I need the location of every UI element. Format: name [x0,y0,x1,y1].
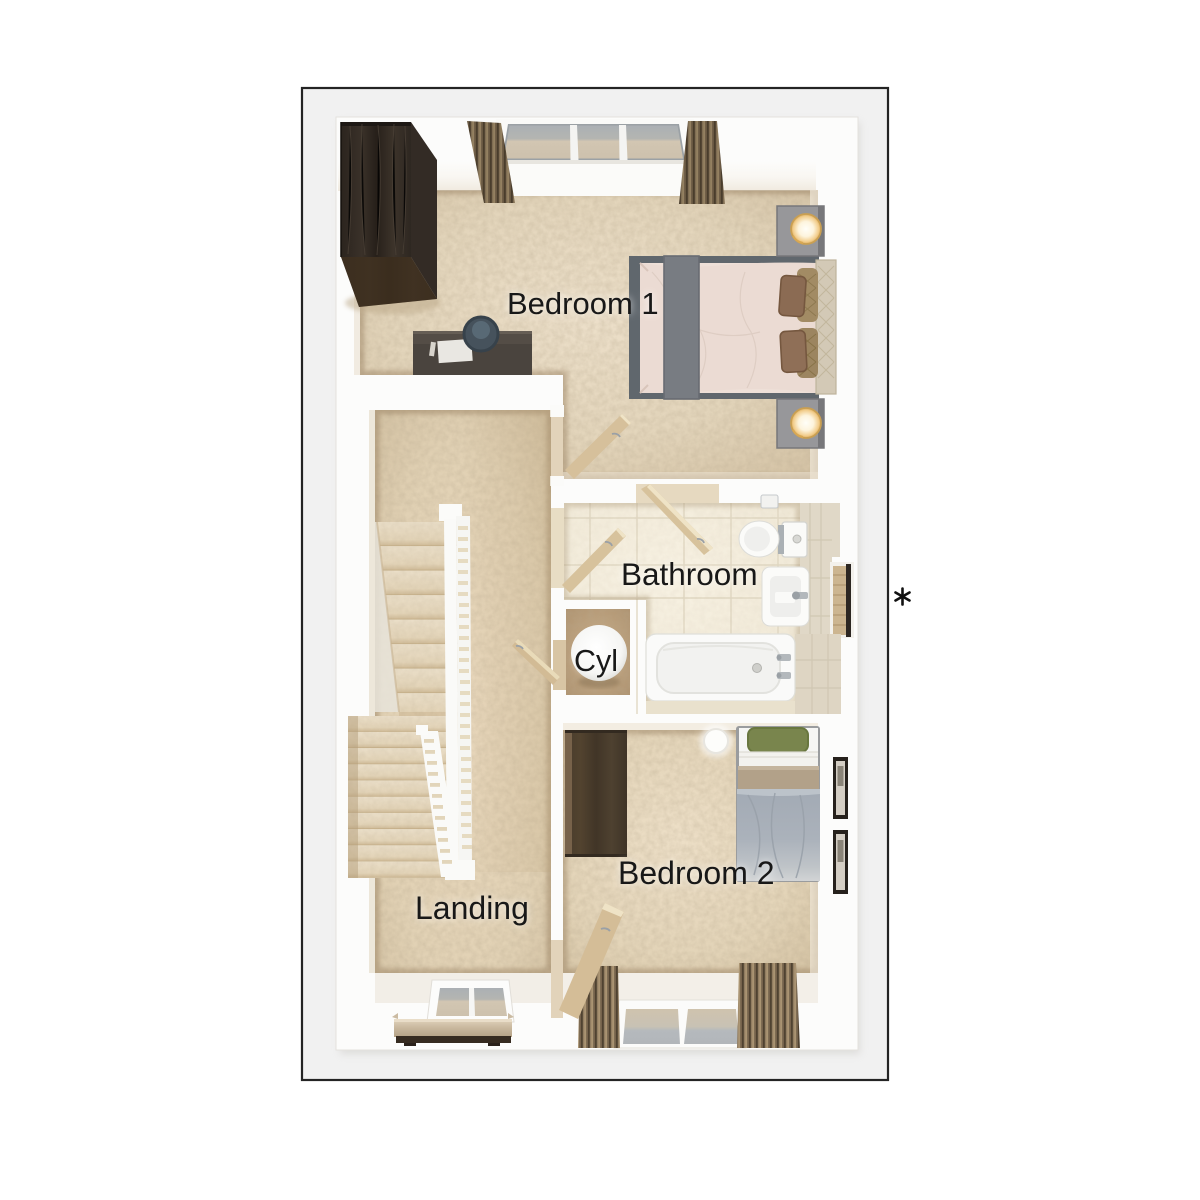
svg-text:Landing: Landing [415,890,529,926]
svg-text:Bedroom 1: Bedroom 1 [507,286,659,321]
svg-text:Cyl: Cyl [574,644,618,678]
svg-text:Bathroom: Bathroom [621,556,758,592]
svg-text:Bedroom 2: Bedroom 2 [618,855,775,891]
